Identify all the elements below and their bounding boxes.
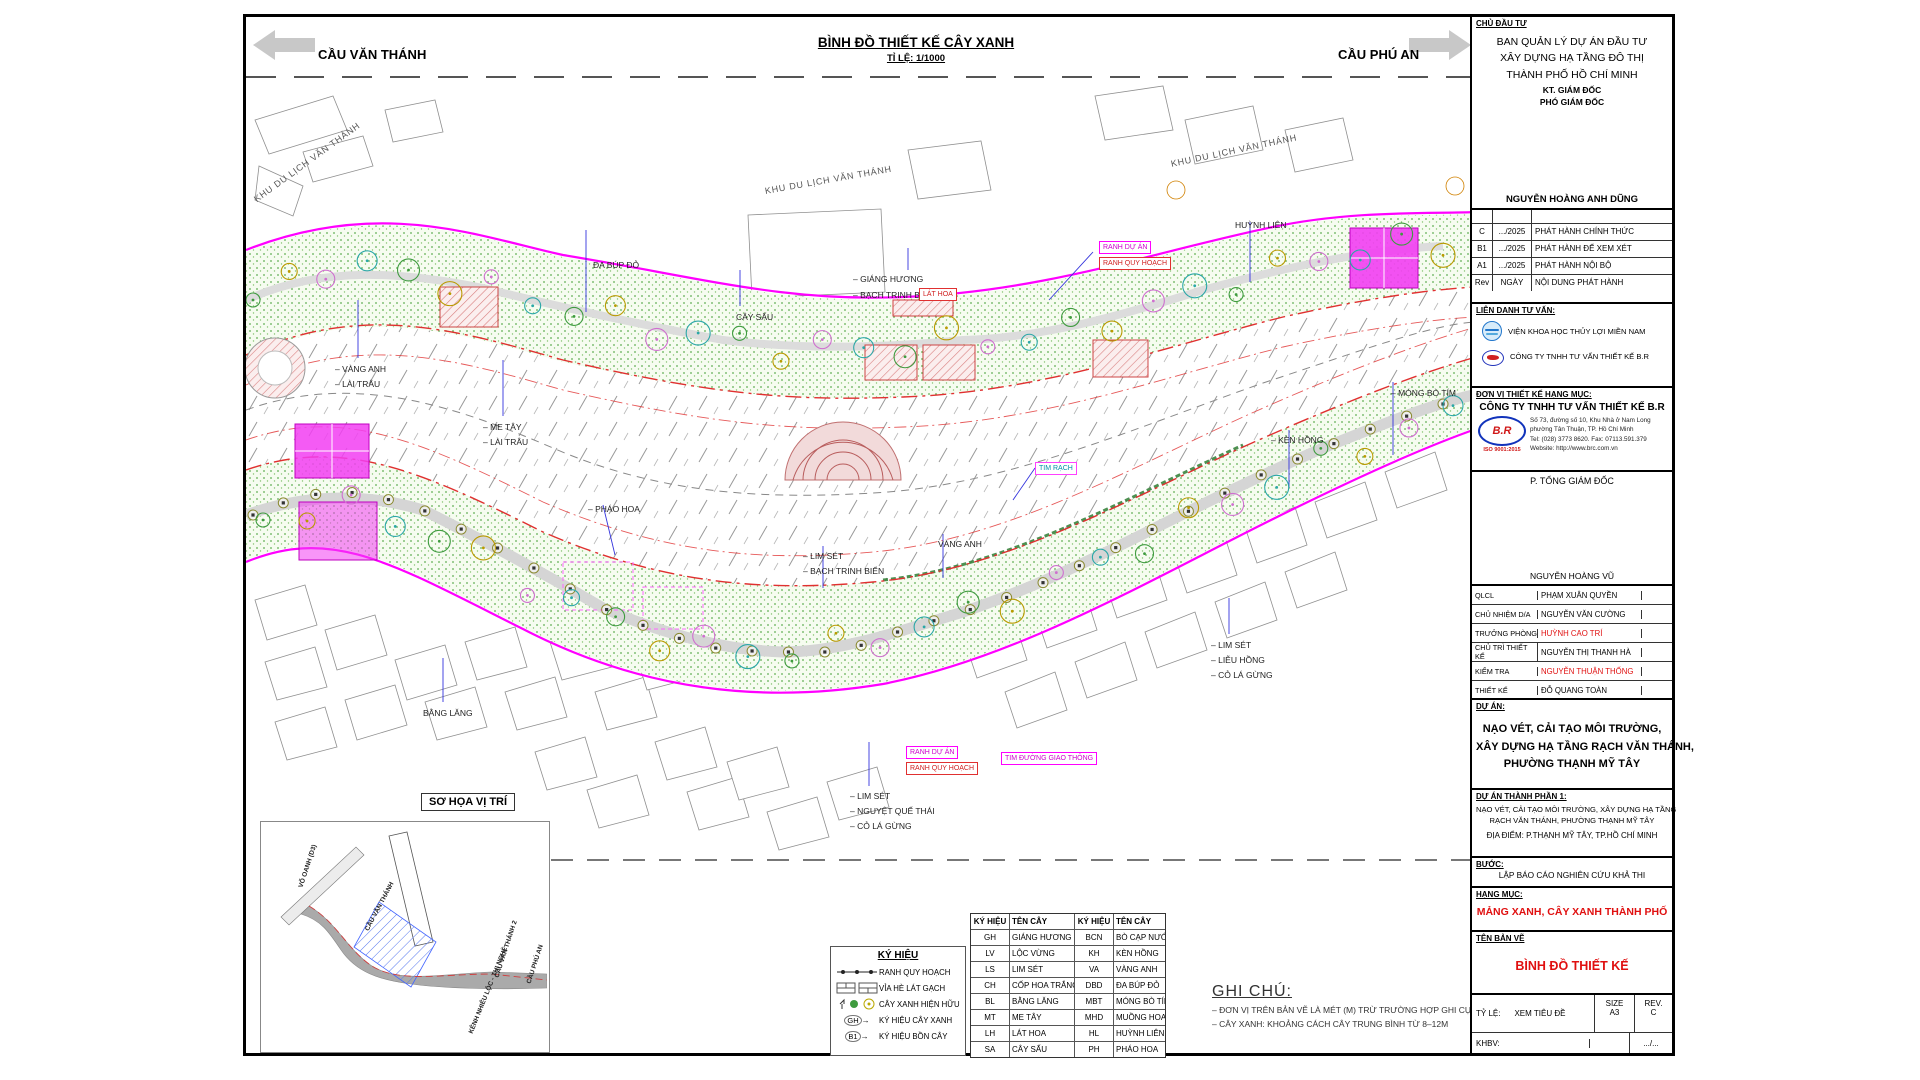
legend-title: KÝ HIỆU	[835, 950, 961, 961]
tree-table-cell: HL	[1075, 1026, 1114, 1041]
scale-label: TỶ LỆ:	[1476, 1009, 1500, 1018]
tree-table-cell: GH	[971, 930, 1010, 945]
staff-role: CHỦ TRÌ THIẾT KẾ	[1472, 643, 1538, 661]
legend-item: RANH QUY HOẠCH	[835, 964, 961, 980]
institute-logo-icon	[1482, 321, 1502, 341]
staff-row: QLCLPHẠM XUÂN QUYỀN	[1472, 586, 1672, 604]
consortium-heading: LIÊN DANH TƯ VẤN:	[1476, 306, 1668, 315]
inset-road-vo-oanh	[281, 847, 364, 925]
tree-table-cell: CỐP HOA TRẮNG	[1010, 978, 1075, 993]
staff-row: TRƯỞNG PHÒNGHUỲNH CAO TRÍ	[1472, 623, 1672, 642]
staff-role: QLCL	[1472, 591, 1538, 600]
revision-row: A1.../2025PHÁT HÀNH NỘI BỘ	[1472, 257, 1672, 274]
inset-location-map: VÕ OANH (D3)CẦU VĂN THÁNHCẦU VĂN THÁNH 2…	[260, 821, 550, 1053]
owner-line: BAN QUẢN LÝ DỰ ÁN ĐẦU TƯ	[1476, 34, 1668, 50]
tree-table-cell: MUỒNG HOA ĐÀO	[1114, 1010, 1165, 1025]
tree-table-cell: LH	[971, 1026, 1010, 1041]
staff-role: KIỂM TRA	[1472, 667, 1538, 676]
tree-table-cell: LỘC VỪNG	[1010, 946, 1075, 961]
legend-symbol: B1→	[835, 1031, 879, 1042]
staff-name: NGUYỄN THỊ THANH HÀ	[1538, 648, 1642, 657]
inset-title: SƠ HỌA VỊ TRÍ	[421, 793, 515, 811]
sheet-frame: CẦU VĂN THÁNH BÌNH ĐỒ THIẾT KẾ CÂY XANH …	[243, 14, 1675, 1056]
revision-date: .../2025	[1493, 241, 1532, 257]
tree-table-header-cell: KÝ HIỆU	[1075, 914, 1114, 929]
tree-table-cell: MT	[971, 1010, 1010, 1025]
tree-table-cell: BẰNG LĂNG	[1010, 994, 1075, 1009]
legend-item-label: VỈA HÈ LÁT GẠCH	[879, 984, 945, 993]
staff-table: QLCLPHẠM XUÂN QUYỀNCHỦ NHIỆM D/ANGUYỄN V…	[1472, 586, 1672, 700]
size-value: A3	[1595, 1008, 1634, 1017]
legend-symbol	[835, 967, 879, 977]
khbv-label: KHBV:	[1472, 1039, 1590, 1048]
tree-table-cell: HUỲNH LIÊN	[1114, 1026, 1165, 1041]
legend-item-label: RANH QUY HOẠCH	[879, 968, 950, 977]
component-line: NẠO VÉT, CẢI TẠO MÔI TRƯỜNG, XÂY DỰNG HẠ…	[1476, 804, 1668, 815]
tree-table-cell: VÀNG ANH	[1114, 962, 1165, 977]
tree-table-cell: PHÁO HOA	[1114, 1042, 1165, 1057]
company-logo-text: B.R	[1478, 416, 1526, 446]
tree-table-header-cell: KÝ HIỆU	[971, 914, 1010, 929]
drawing-title-text: BÌNH ĐỒ THIẾT KẾ CÂY XANH	[786, 35, 1046, 50]
component-section: DỰ ÁN THÀNH PHẦN 1: NẠO VÉT, CẢI TẠO MÔI…	[1472, 790, 1672, 858]
project-name-line: XÂY DỰNG HẠ TẦNG RẠCH VĂN THÁNH,	[1476, 739, 1668, 757]
drawing-scale-text: TỈ LỆ: 1/1000	[786, 53, 1046, 64]
component-location: ĐỊA ĐIỂM: P.THẠNH MỸ TÂY, TP.HỒ CHÍ MINH	[1476, 830, 1668, 842]
staff-row: THIẾT KẾĐỖ QUANG TOÀN	[1472, 680, 1672, 699]
revision-row: RevNGÀYNỘI DUNG PHÁT HÀNH	[1472, 274, 1672, 291]
revision-code: B1	[1472, 241, 1493, 257]
drawing-name-heading: TÊN BẢN VẼ	[1476, 934, 1668, 943]
size-label: SIZE	[1595, 999, 1634, 1008]
owner-role: PHÓ GIÁM ĐỐC	[1476, 97, 1668, 107]
owner-line: THÀNH PHỐ HỒ CHÍ MINH	[1476, 67, 1668, 83]
staff-name: NGUYỄN VĂN CƯỜNG	[1538, 610, 1642, 619]
staff-name: ĐỖ QUANG TOÀN	[1538, 686, 1642, 695]
staff-row: KIỂM TRANGUYỄN THUẬN THỐNG	[1472, 661, 1672, 680]
tree-table-cell: PH	[1075, 1042, 1114, 1057]
tree-table-row: CHCỐP HOA TRẮNGDBDĐA BÚP ĐỎ	[971, 977, 1165, 993]
company-iso-label: ISO 9001:2015	[1476, 447, 1528, 453]
tree-table-row: SACÂY SẤUPHPHÁO HOA	[971, 1041, 1165, 1057]
category-section: HẠNG MỤC: MẢNG XANH, CÂY XANH THÀNH PHỐ	[1472, 888, 1672, 932]
tree-table-cell: VA	[1075, 962, 1114, 977]
director-section: P. TỔNG GIÁM ĐỐC NGUYỄN HOÀNG VŨ	[1472, 472, 1672, 586]
owner-section: CHỦ ĐẦU TƯ BAN QUẢN LÝ DỰ ÁN ĐẦU TƯ XÂY …	[1472, 17, 1672, 210]
owner-role: KT. GIÁM ĐỐC	[1476, 85, 1668, 95]
company-address-line: phường Tân Thuận, TP. Hồ Chí Minh	[1530, 425, 1668, 434]
drawing-name-value: BÌNH ĐỒ THIẾT KẾ	[1476, 959, 1668, 973]
component-heading: DỰ ÁN THÀNH PHẦN 1:	[1476, 792, 1668, 801]
component-line: RẠCH VĂN THÁNH, PHƯỜNG THẠNH MỸ TÂY	[1476, 815, 1668, 826]
tree-table-row: MTME TÂYMHDMUỒNG HOA ĐÀO	[971, 1009, 1165, 1025]
tree-table-cell: DBD	[1075, 978, 1114, 993]
staff-name: PHẠM XUÂN QUYỀN	[1538, 591, 1642, 600]
tree-table-cell: KH	[1075, 946, 1114, 961]
right-bridge-label: CẦU PHÚ AN	[1338, 47, 1419, 62]
phase-value: LẬP BÁO CÁO NGHIÊN CỨU KHẢ THI	[1476, 870, 1668, 880]
staff-role: TRƯỞNG PHÒNG	[1472, 629, 1538, 638]
staff-role: THIẾT KẾ	[1472, 686, 1538, 695]
tree-table-cell: MBT	[1075, 994, 1114, 1009]
project-name-line: NẠO VÉT, CẢI TẠO MÔI TRƯỜNG,	[1476, 721, 1668, 739]
design-unit-section: ĐƠN VỊ THIẾT KẾ HẠNG MỤC: CÔNG TY TNHH T…	[1472, 388, 1672, 472]
tree-table-row: BLBẰNG LĂNGMBTMÓNG BÒ TÍM	[971, 993, 1165, 1009]
tree-table-cell: BÒ CẠP NƯỚC	[1114, 930, 1165, 945]
tree-table-row: GHGIÁNG HƯƠNGBCNBÒ CẠP NƯỚC	[971, 929, 1165, 945]
staff-row: CHỦ TRÌ THIẾT KẾNGUYỄN THỊ THANH HÀ	[1472, 642, 1672, 661]
tree-table-cell: LÁT HOA	[1010, 1026, 1075, 1041]
company-logo: B.R ISO 9001:2015	[1476, 416, 1528, 454]
owner-signer: NGUYỄN HOÀNG ANH DŨNG	[1472, 194, 1672, 205]
revision-row: B1.../2025PHÁT HÀNH ĐỂ XEM XÉT	[1472, 240, 1672, 257]
tree-table-cell: LV	[971, 946, 1010, 961]
scale-value: XEM TIÊU ĐỀ	[1514, 1009, 1565, 1018]
tree-table-cell: MHD	[1075, 1010, 1114, 1025]
director-name: NGUYỄN HOÀNG VŨ	[1472, 571, 1672, 581]
tree-table-cell: MÓNG BÒ TÍM	[1114, 994, 1165, 1009]
category-value: MẢNG XANH, CÂY XANH THÀNH PHỐ	[1476, 906, 1668, 918]
company-address-line: Số 73, đường số 10, Khu Nhà ở Nam Long	[1530, 416, 1668, 425]
revision-code: A1	[1472, 258, 1493, 274]
legend-item: GH→KÝ HIỆU CÂY XANH	[835, 1012, 961, 1028]
revision-date: NGÀY	[1493, 275, 1532, 291]
tree-table-cell: KÈN HỒNG	[1114, 946, 1165, 961]
br-logo-icon	[1482, 350, 1504, 366]
consortium-member: CÔNG TY TNHH TƯ VẤN THIẾT KẾ B.R	[1476, 347, 1668, 366]
legend-item: B1→KÝ HIỆU BỒN CÂY	[835, 1028, 961, 1044]
company-address-line: Tel: (028) 3773 8620. Fax: 07113.591.379	[1530, 435, 1668, 444]
consortium-member-name: CÔNG TY TNHH TƯ VẤN THIẾT KẾ B.R	[1510, 352, 1649, 361]
owner-heading: CHỦ ĐẦU TƯ	[1476, 19, 1668, 28]
revision-desc: PHÁT HÀNH NỘI BỘ	[1532, 258, 1672, 274]
tree-table-row: LVLỘC VỪNGKHKÈN HỒNG	[971, 945, 1165, 961]
legend-item: VỈA HÈ LÁT GẠCH	[835, 980, 961, 996]
consortium-member-name: VIỆN KHOA HỌC THỦY LỢI MIỀN NAM	[1508, 327, 1645, 336]
company-address-line: Website: http://www.brc.com.vn	[1530, 444, 1668, 453]
drawing-title: BÌNH ĐỒ THIẾT KẾ CÂY XANH TỈ LỆ: 1/1000	[786, 35, 1046, 64]
symbol-legend: KÝ HIỆU RANH QUY HOẠCHVỈA HÈ LÁT GẠCHCÂY…	[830, 946, 966, 1056]
design-unit-heading: ĐƠN VỊ THIẾT KẾ HẠNG MỤC:	[1476, 390, 1668, 399]
tree-table-cell: BCN	[1075, 930, 1114, 945]
owner-line: XÂY DỰNG HẠ TẦNG ĐÔ THỊ	[1476, 50, 1668, 66]
staff-role: CHỦ NHIỆM D/A	[1472, 610, 1538, 619]
staff-name: NGUYỄN THUẬN THỐNG	[1538, 667, 1642, 676]
title-block: CHỦ ĐẦU TƯ BAN QUẢN LÝ DỰ ÁN ĐẦU TƯ XÂY …	[1470, 17, 1672, 1053]
tree-table-cell: GIÁNG HƯƠNG	[1010, 930, 1075, 945]
project-name-line: PHƯỜNG THẠNH MỸ TÂY	[1476, 756, 1668, 774]
sheet-number: .../...	[1630, 1039, 1672, 1048]
design-unit-name: CÔNG TY TNHH TƯ VẤN THIẾT KẾ B.R	[1476, 402, 1668, 413]
staff-name: HUỲNH CAO TRÍ	[1538, 629, 1642, 638]
tree-table-row: LHLÁT HOAHLHUỲNH LIÊN	[971, 1025, 1165, 1041]
revision-date: .../2025	[1493, 224, 1532, 240]
legend-symbol	[835, 997, 879, 1011]
tree-table-cell: BL	[971, 994, 1010, 1009]
consortium-member: VIỆN KHOA HỌC THỦY LỢI MIỀN NAM	[1476, 321, 1668, 341]
revision-code: Rev	[1472, 275, 1493, 291]
legend-item: CÂY XANH HIỆN HỮU	[835, 996, 961, 1012]
tree-table-cell: SA	[971, 1042, 1010, 1057]
tree-table-cell: ĐA BÚP ĐỎ	[1114, 978, 1165, 993]
revision-table: C.../2025PHÁT HÀNH CHÍNH THỨCB1.../2025P…	[1472, 210, 1672, 304]
legend-symbol: GH→	[835, 1015, 879, 1026]
rev-value: C	[1635, 1008, 1672, 1017]
legend-item-label: KÝ HIỆU BỒN CÂY	[879, 1032, 947, 1041]
revision-code: C	[1472, 224, 1493, 240]
staff-row: CHỦ NHIỆM D/ANGUYỄN VĂN CƯỜNG	[1472, 604, 1672, 623]
director-role: P. TỔNG GIÁM ĐỐC	[1476, 476, 1668, 486]
rev-label: REV.	[1635, 999, 1672, 1008]
tree-table-header-cell: TÊN CÂY	[1010, 914, 1075, 929]
tree-table-cell: LS	[971, 962, 1010, 977]
revision-desc: NỘI DUNG PHÁT HÀNH	[1532, 275, 1672, 291]
company-address: Số 73, đường số 10, Khu Nhà ở Nam Longph…	[1528, 416, 1668, 454]
revision-row: C.../2025PHÁT HÀNH CHÍNH THỨC	[1472, 223, 1672, 240]
drawing-name-section: TÊN BẢN VẼ BÌNH ĐỒ THIẾT KẾ	[1472, 932, 1672, 995]
tree-table-cell: CÂY SẤU	[1010, 1042, 1075, 1057]
project-heading: DỰ ÁN:	[1476, 702, 1668, 711]
legend-item-label: CÂY XANH HIỆN HỮU	[879, 1000, 960, 1009]
left-bridge-label: CẦU VĂN THÁNH	[318, 47, 426, 62]
legend-symbol	[835, 982, 879, 994]
revision-desc: PHÁT HÀNH CHÍNH THỨC	[1532, 224, 1672, 240]
tree-table-row: LSLIM SÉTVAVÀNG ANH	[971, 961, 1165, 977]
phase-heading: BƯỚC:	[1476, 860, 1668, 869]
tree-table-cell: ME TÂY	[1010, 1010, 1075, 1025]
title-block-footer: TỶ LỆ: XEM TIÊU ĐỀ SIZE A3 REV. C KHBV:	[1472, 995, 1672, 1053]
tree-table-cell: CH	[971, 978, 1010, 993]
phase-section: BƯỚC: LẬP BÁO CÁO NGHIÊN CỨU KHẢ THI	[1472, 858, 1672, 888]
drawing-viewer-page: CẦU VĂN THÁNH BÌNH ĐỒ THIẾT KẾ CÂY XANH …	[0, 0, 1920, 1080]
inset-canvas	[261, 822, 547, 1050]
tree-table-header: KÝ HIỆUTÊN CÂYKÝ HIỆUTÊN CÂY	[971, 914, 1165, 929]
tree-table-cell: LIM SÉT	[1010, 962, 1075, 977]
consortium-section: LIÊN DANH TƯ VẤN: VIỆN KHOA HỌC THỦY LỢI…	[1472, 304, 1672, 388]
project-section: DỰ ÁN: NẠO VÉT, CẢI TẠO MÔI TRƯỜNG, XÂY …	[1472, 700, 1672, 790]
category-heading: HẠNG MỤC:	[1476, 890, 1668, 899]
tree-table-header-cell: TÊN CÂY	[1114, 914, 1165, 929]
tree-species-table: KÝ HIỆUTÊN CÂYKÝ HIỆUTÊN CÂYGHGIÁNG HƯƠN…	[970, 913, 1166, 1058]
revision-date: .../2025	[1493, 258, 1532, 274]
revision-desc: PHÁT HÀNH ĐỂ XEM XÉT	[1532, 241, 1672, 257]
legend-item-label: KÝ HIỆU CÂY XANH	[879, 1016, 952, 1025]
